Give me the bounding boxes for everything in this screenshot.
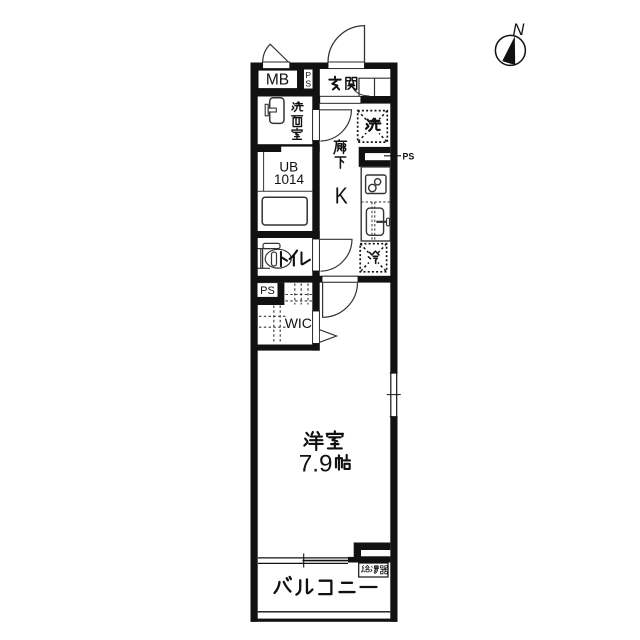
svg-text:MB: MB xyxy=(266,72,289,89)
svg-text:1014: 1014 xyxy=(274,172,305,187)
svg-text:PS: PS xyxy=(260,285,275,297)
svg-text:N: N xyxy=(513,21,525,39)
svg-text:S: S xyxy=(305,79,311,89)
svg-text:WIC: WIC xyxy=(285,315,312,331)
svg-text:7.9: 7.9 xyxy=(299,451,333,478)
svg-text:PS: PS xyxy=(403,152,415,162)
svg-text:K: K xyxy=(335,182,348,208)
